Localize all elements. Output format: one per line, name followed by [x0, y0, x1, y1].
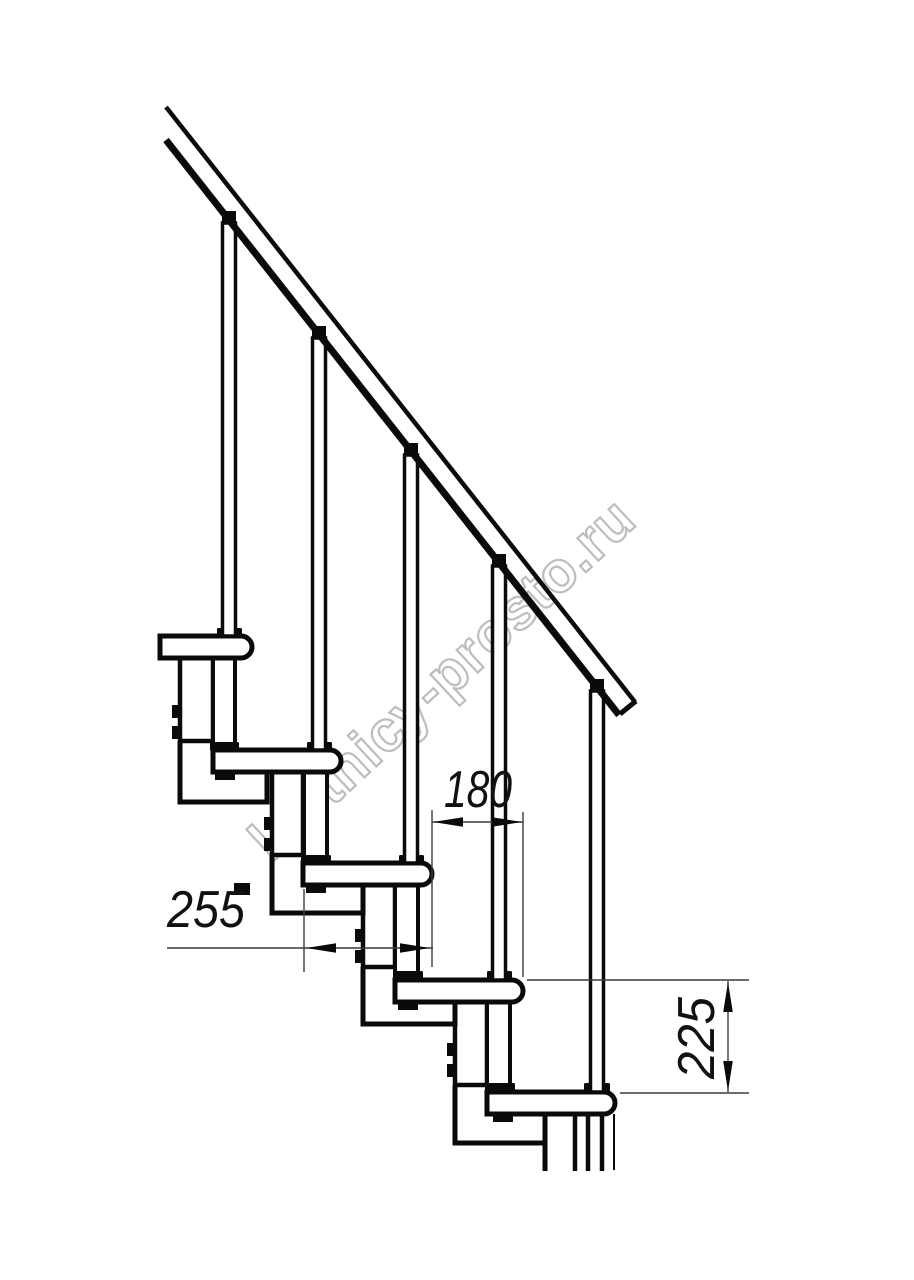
tread-2: [213, 750, 341, 772]
module-panel-1: [180, 658, 213, 741]
bolt-tab: [264, 817, 272, 830]
bolt-tab: [264, 838, 272, 851]
bolt-tab: [172, 705, 180, 718]
bolt-tab: [447, 1064, 455, 1077]
arrowhead-left: [306, 943, 336, 953]
baluster-3: [405, 455, 418, 863]
bolt-tab: [172, 726, 180, 739]
handrail-end-cap: [620, 701, 636, 714]
tread-1: [160, 636, 252, 658]
post-foot: [301, 855, 331, 864]
tread-post-3: [395, 882, 418, 982]
post-foot: [485, 1083, 515, 1093]
bolt-tab: [355, 950, 363, 963]
dimension-label-run: 180: [444, 761, 512, 819]
post-foot: [210, 742, 239, 751]
tread-post-2: [304, 769, 327, 866]
tread-post-4: [487, 999, 510, 1094]
tread-post-1: [213, 653, 235, 752]
bolt-tab: [447, 1043, 455, 1056]
under-tread-nub: [306, 885, 326, 893]
module-panel-4: [455, 1002, 487, 1085]
tread-3: [303, 863, 432, 885]
tread-4: [395, 980, 523, 1002]
dimension-label-rise: 225: [668, 996, 726, 1080]
dimension-label-tread-depth: 255: [166, 881, 246, 939]
post-foot: [393, 971, 423, 981]
under-tread-nub: [215, 772, 235, 780]
bolt-tab: [355, 929, 363, 942]
under-tread-nub: [398, 1002, 418, 1010]
module-panel-2: [272, 772, 303, 855]
baluster-5: [591, 691, 604, 1092]
under-tread-nub: [493, 1114, 513, 1122]
baluster-1: [223, 223, 236, 636]
staircase-technical-drawing: lestnicy-prosto.ru: [0, 0, 914, 1280]
module-panel-3: [363, 885, 395, 967]
tread-5: [487, 1092, 615, 1114]
staircase-drawing-page: lestnicy-prosto.ru: [0, 0, 914, 1280]
baluster-2: [313, 338, 326, 750]
